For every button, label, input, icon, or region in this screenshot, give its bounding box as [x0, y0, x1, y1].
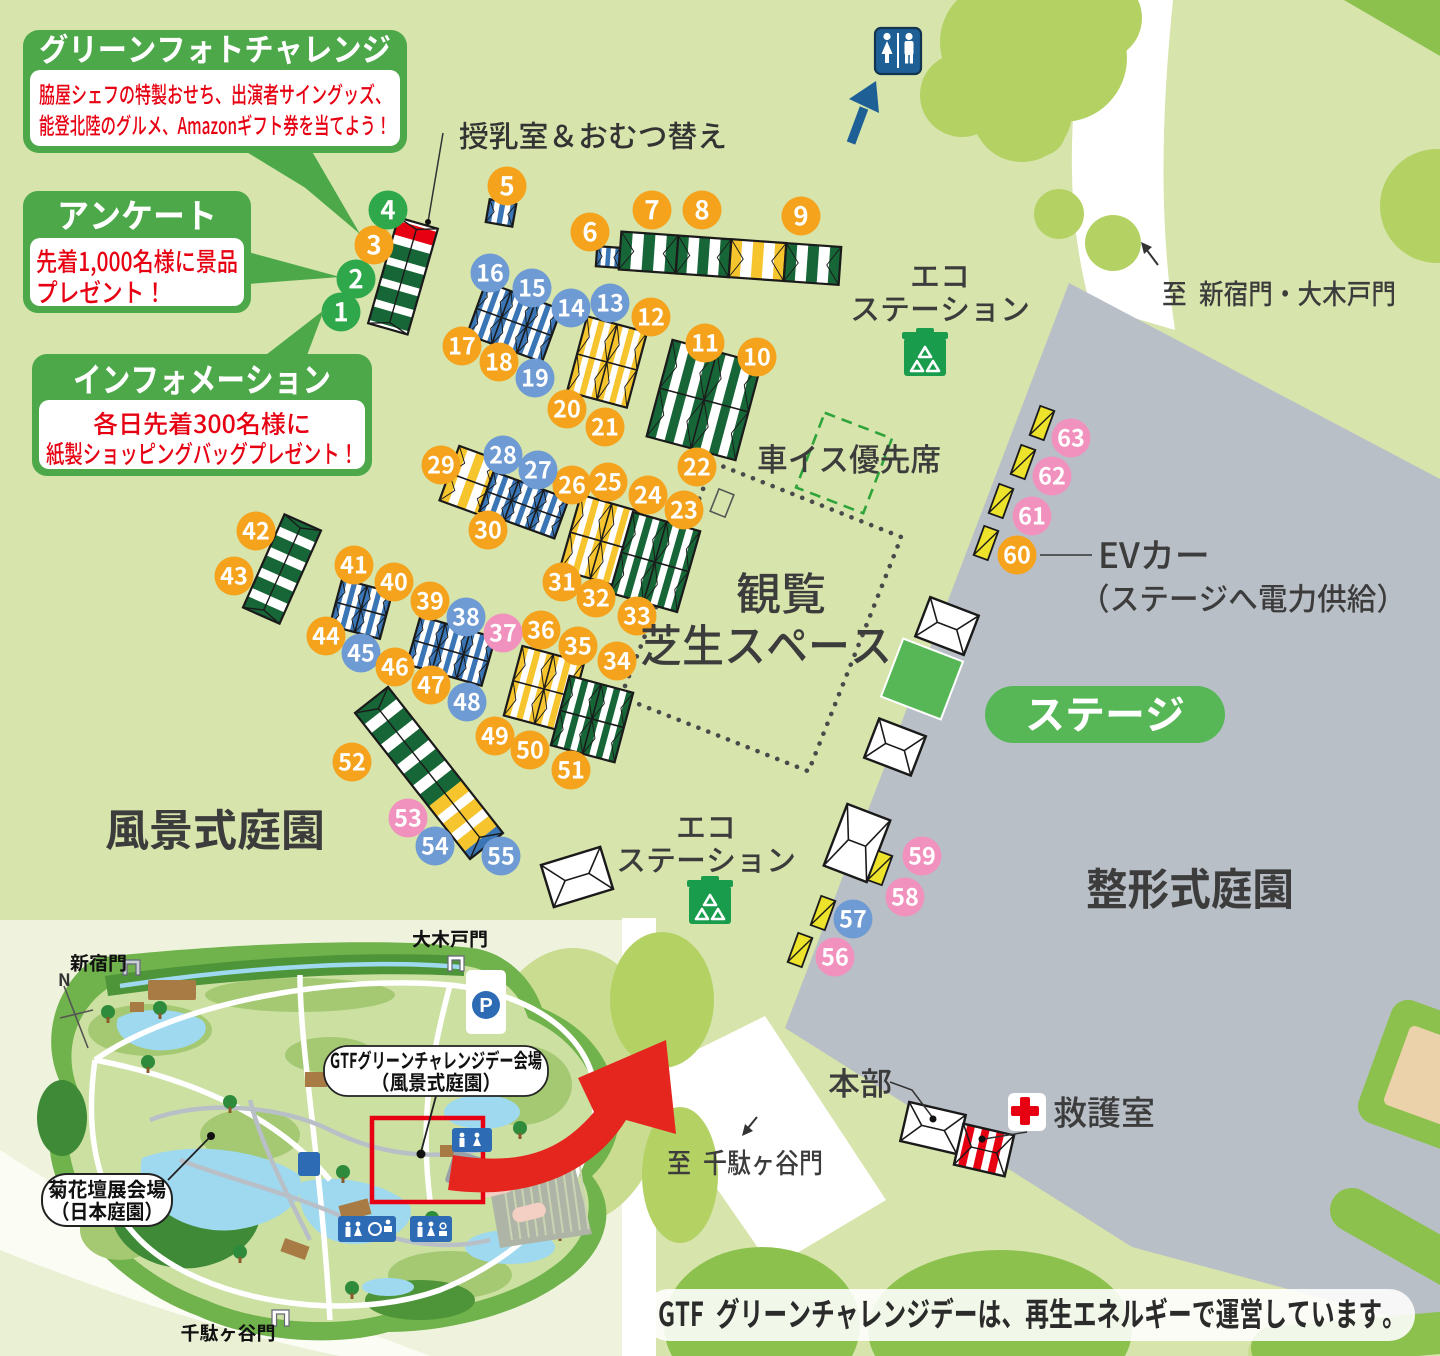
- svg-text:P: P: [479, 995, 492, 1017]
